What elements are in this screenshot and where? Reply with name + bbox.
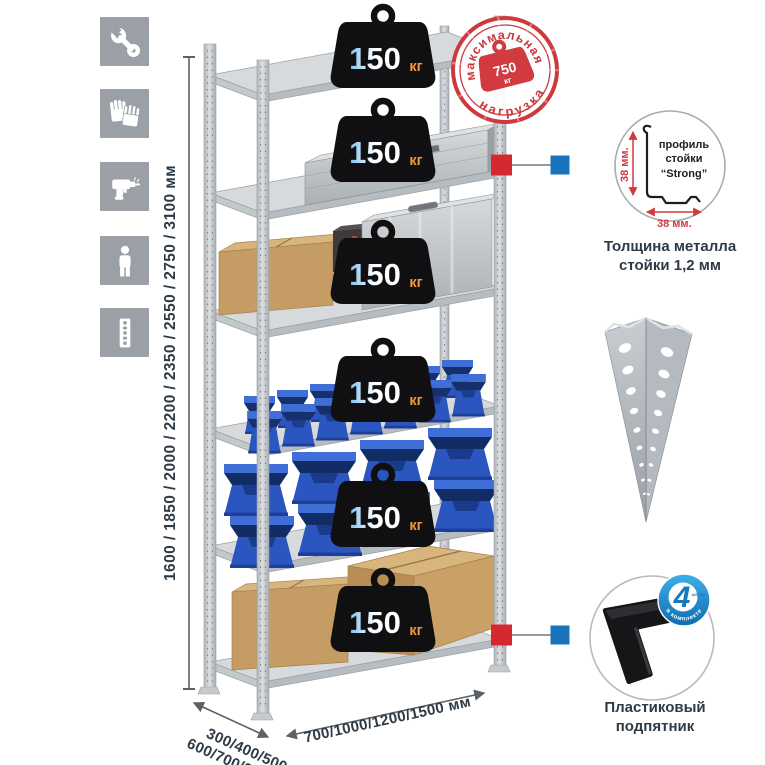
profile-caption: Толщина металла стойки 1,2 мм [585, 237, 755, 275]
svg-text:150: 150 [349, 605, 401, 640]
rack-scene: 150кг 150кг 150кг 150кг 150кг 150кг макс… [0, 0, 765, 765]
svg-text:150: 150 [349, 257, 401, 292]
svg-text:кг: кг [409, 623, 422, 639]
svg-text:“Strong”: “Strong” [661, 168, 707, 180]
red-marker-bottom [491, 625, 512, 646]
load-badge-2: 150кг [331, 101, 436, 182]
svg-text:38 мм.: 38 мм. [657, 218, 692, 230]
load-badge-1: 150кг [331, 7, 436, 88]
quantity-badge: 4 штуки в комплекте [658, 574, 710, 626]
height-dimension-line [183, 57, 195, 689]
red-marker-top [491, 155, 512, 176]
svg-text:кг: кг [409, 518, 422, 534]
post-profile-callout: 38 мм. 38 мм. профиль стойки “Strong” [615, 111, 725, 230]
svg-text:кг: кг [409, 59, 422, 75]
svg-text:150: 150 [349, 135, 401, 170]
blue-marker-top [551, 156, 570, 175]
angle-post-image [605, 318, 692, 522]
height-dimensions-label: 1600 / 1850 / 2000 / 2200 / 2350 / 2550 … [162, 123, 180, 623]
max-load-stamp: максимальная нагрузка 750 кг [434, 0, 576, 141]
svg-text:кг: кг [409, 393, 422, 409]
svg-text:4: 4 [673, 581, 691, 614]
cardboard-box-shelf3 [219, 233, 349, 315]
svg-text:стойки: стойки [665, 153, 702, 165]
blue-marker-bottom [551, 626, 570, 645]
svg-text:штуки: штуки [692, 592, 706, 597]
svg-text:профиль: профиль [659, 139, 709, 151]
svg-text:150: 150 [349, 375, 401, 410]
foot-caption: Пластиковый подпятник [575, 698, 735, 736]
product-infographic: 150кг 150кг 150кг 150кг 150кг 150кг макс… [0, 0, 765, 765]
load-badge-4: 150кг [331, 341, 436, 422]
svg-text:150: 150 [349, 41, 401, 76]
plastic-foot-callout: 4 штуки в комплекте [590, 574, 714, 700]
svg-text:38 мм.: 38 мм. [619, 147, 631, 182]
svg-text:150: 150 [349, 500, 401, 535]
svg-text:кг: кг [409, 153, 422, 169]
svg-text:кг: кг [409, 275, 422, 291]
